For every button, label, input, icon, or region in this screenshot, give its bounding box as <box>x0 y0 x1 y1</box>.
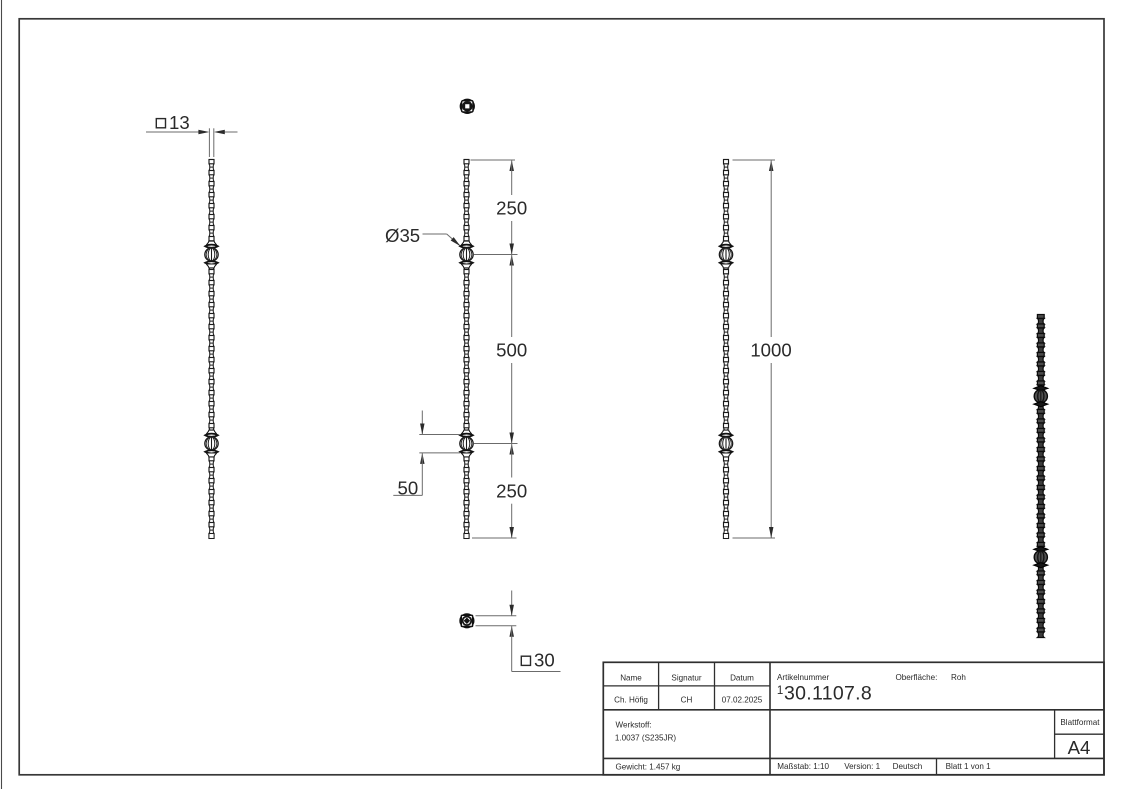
svg-text:1: 1 <box>777 685 783 697</box>
svg-text:Maßstab: 1:10: Maßstab: 1:10 <box>777 762 829 771</box>
svg-text:30: 30 <box>534 649 555 670</box>
svg-text:Name: Name <box>620 673 642 682</box>
svg-text:Artikelnummer: Artikelnummer <box>777 673 829 682</box>
svg-text:Werkstoff:: Werkstoff: <box>616 720 652 729</box>
svg-text:30.1107.8: 30.1107.8 <box>784 683 872 705</box>
svg-text:Blattformat: Blattformat <box>1060 718 1100 727</box>
svg-text:Version: 1: Version: 1 <box>844 762 880 771</box>
svg-text:1.0037 (S235JR): 1.0037 (S235JR) <box>615 734 676 743</box>
svg-text:A4: A4 <box>1068 737 1091 758</box>
svg-text:500: 500 <box>496 340 527 361</box>
svg-text:1000: 1000 <box>750 340 791 361</box>
svg-text:Blatt 1 von 1: Blatt 1 von 1 <box>946 762 991 771</box>
svg-text:07.02.2025: 07.02.2025 <box>722 695 763 704</box>
svg-text:50: 50 <box>398 477 419 498</box>
svg-text:Ø35: Ø35 <box>385 225 420 246</box>
svg-text:Deutsch: Deutsch <box>893 762 923 771</box>
svg-text:CH: CH <box>681 695 693 704</box>
svg-text:Gewicht: 1.457 kg: Gewicht: 1.457 kg <box>616 762 681 771</box>
svg-text:250: 250 <box>496 480 527 501</box>
svg-text:Oberfläche:: Oberfläche: <box>896 673 938 682</box>
svg-text:Signatur: Signatur <box>671 673 701 682</box>
svg-text:Ch. Höfig: Ch. Höfig <box>614 695 648 704</box>
svg-text:Roh: Roh <box>951 673 966 682</box>
svg-text:Datum: Datum <box>730 673 754 682</box>
svg-text:13: 13 <box>169 112 190 133</box>
svg-text:250: 250 <box>496 198 527 219</box>
